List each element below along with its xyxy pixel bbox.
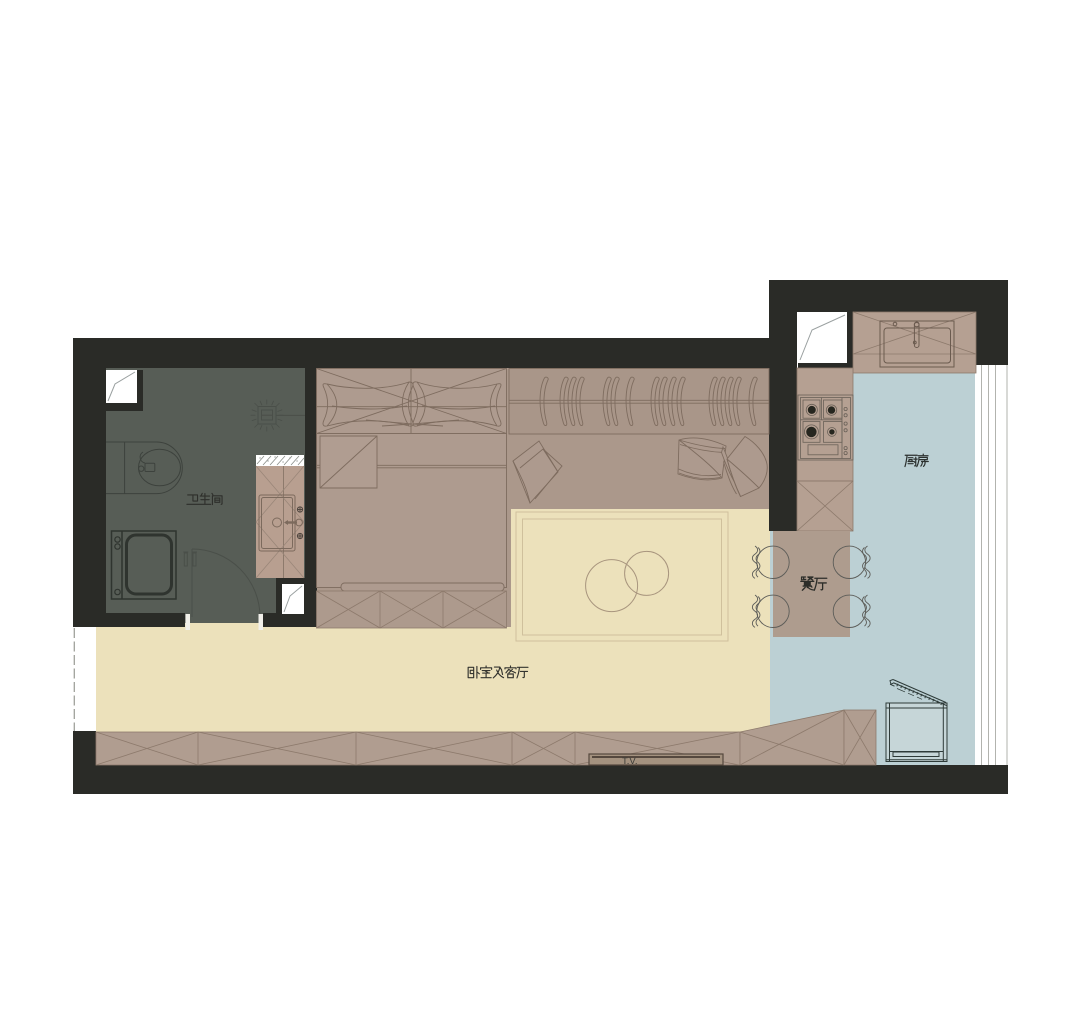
svg-text:T.V.: T.V. [622,756,638,767]
